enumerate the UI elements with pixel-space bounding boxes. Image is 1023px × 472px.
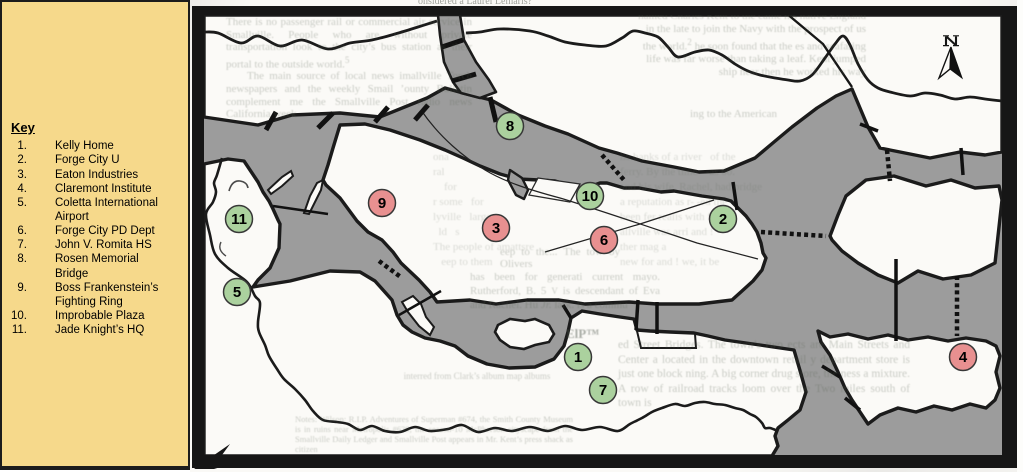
svg-text:4: 4 xyxy=(959,349,968,366)
svg-text:9: 9 xyxy=(378,195,386,212)
svg-text:7: 7 xyxy=(599,382,607,399)
svg-text:2: 2 xyxy=(719,211,727,228)
svg-text:6: 6 xyxy=(600,232,608,249)
svg-text:1: 1 xyxy=(574,349,582,366)
svg-text:5: 5 xyxy=(233,284,241,301)
svg-text:3: 3 xyxy=(492,220,500,237)
svg-text:8: 8 xyxy=(506,118,514,135)
svg-text:10: 10 xyxy=(582,188,599,205)
svg-text:11: 11 xyxy=(231,211,247,228)
